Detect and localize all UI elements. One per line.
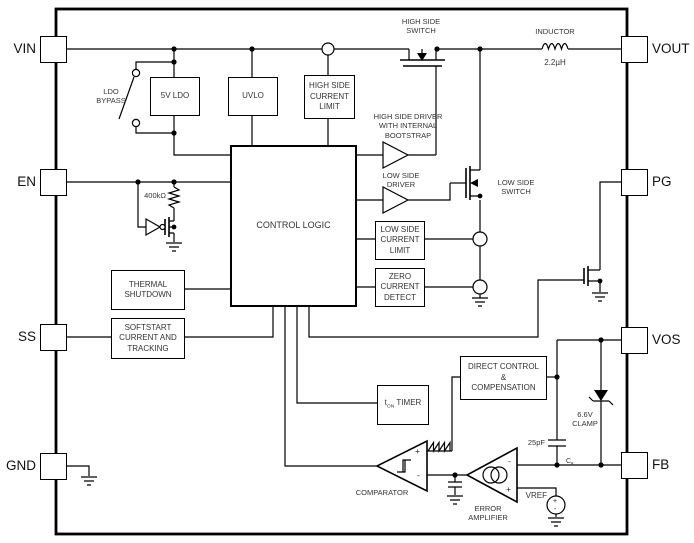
pin-en	[40, 169, 67, 196]
inductor-label: INDUCTOR	[533, 27, 577, 36]
pin-vout	[621, 36, 648, 63]
pin-label-fb: FB	[652, 457, 669, 472]
pin-label-pg: PG	[652, 174, 672, 189]
block-zero-current-detect: ZERO CURRENT DETECT	[375, 268, 425, 307]
high-side-switch-label: HIGH SIDE SWITCH	[398, 17, 444, 36]
pin-gnd	[40, 453, 67, 480]
block-high-side-current-limit: HIGH SIDE CURRENT LIMIT	[304, 75, 355, 119]
cap-name-label: Cff	[566, 449, 586, 467]
low-side-driver-symbol	[353, 187, 408, 213]
pin-vin	[40, 36, 67, 63]
block-5v-ldo: 5V LDO	[150, 77, 200, 116]
ldo-bypass-label: LDO BYPASS	[94, 87, 128, 106]
resistor-value-label: 400kΩ	[136, 191, 166, 200]
error-amplifier-label: ERROR AMPLIFIER	[460, 504, 516, 523]
comparator-minus-sign: -	[417, 471, 420, 480]
ramp-wire	[427, 377, 460, 451]
pullup-resistor	[169, 187, 179, 208]
inductor-coil	[542, 44, 568, 50]
low-side-switch-label: LOW SIDE SWITCH	[494, 178, 538, 197]
block-control-logic: CONTROL LOGIC	[230, 145, 357, 307]
comparator-plus-sign: +	[415, 447, 420, 456]
current-sense-top	[473, 232, 487, 246]
high-side-driver-label: HIGH SIDE DRIVER WITH INTERNAL BOOTSTRAP	[358, 112, 458, 140]
pin-ss	[40, 324, 67, 351]
pin-fb	[621, 452, 648, 479]
erramp-minus-sign: -	[508, 457, 511, 466]
inductor-wire	[437, 44, 621, 171]
vos-network	[545, 340, 621, 465]
pin-label-ss: SS	[2, 329, 36, 344]
erramp-plus-sign: +	[506, 485, 511, 494]
inductor-value-label: 2.2µH	[533, 58, 577, 68]
comparator-label: COMPARATOR	[350, 488, 414, 497]
clamp-label: 6.6V CLAMP	[567, 410, 603, 429]
vref-label: VREF	[518, 491, 547, 501]
pin-label-vos: VOS	[652, 332, 681, 347]
zener-diode	[594, 390, 608, 401]
block-direct-control-compensation: DIRECT CONTROL & COMPENSATION	[460, 356, 547, 400]
block-thermal-shutdown: THERMAL SHUTDOWN	[111, 270, 185, 310]
block-low-side-current-limit: LOW SIDE CURRENT LIMIT	[375, 221, 425, 260]
block-uvlo: UVLO	[228, 77, 278, 116]
pin-pg	[621, 169, 648, 196]
pin-label-vin: VIN	[2, 41, 36, 56]
pin-label-vout: VOUT	[652, 41, 690, 56]
pin-vos	[621, 327, 648, 354]
sawtooth-waveform	[428, 443, 450, 452]
block-ton-timer: tON TIMER	[377, 385, 429, 425]
feedforward-capacitor	[548, 440, 566, 446]
pin-label-gnd: GND	[2, 458, 36, 473]
block-softstart: SOFTSTART CURRENT AND TRACKING	[111, 318, 185, 359]
pg-mosfet	[584, 182, 621, 301]
block-diagram: 5V LDO UVLO HIGH SIDE CURRENT LIMIT CONT…	[0, 0, 694, 543]
high-side-driver-symbol	[353, 142, 436, 168]
inverter-symbol	[146, 219, 160, 235]
current-sense-bottom	[473, 280, 487, 294]
vref-plus-sign: +	[553, 498, 557, 505]
low-side-driver-label: LOW SIDE DRIVER	[379, 171, 423, 190]
compensation-capacitor	[448, 475, 462, 495]
cap-value-label: 25pF	[518, 438, 545, 447]
vref-minus-sign: -	[554, 506, 556, 513]
gnd-pin-wire	[65, 466, 97, 485]
pin-label-en: EN	[2, 174, 36, 189]
